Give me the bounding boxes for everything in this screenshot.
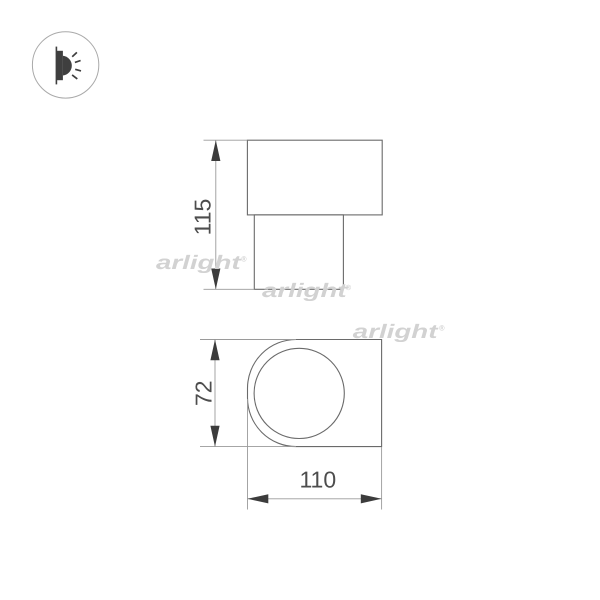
svg-text:arlight: arlight <box>353 321 440 343</box>
svg-text:®: ® <box>439 324 445 333</box>
svg-text:arlight: arlight <box>262 280 349 302</box>
svg-text:115: 115 <box>190 199 216 236</box>
svg-text:®: ® <box>241 255 247 264</box>
svg-text:arlight: arlight <box>156 252 243 274</box>
svg-text:®: ® <box>346 283 352 292</box>
svg-text:110: 110 <box>299 467 336 493</box>
svg-text:72: 72 <box>190 380 216 406</box>
